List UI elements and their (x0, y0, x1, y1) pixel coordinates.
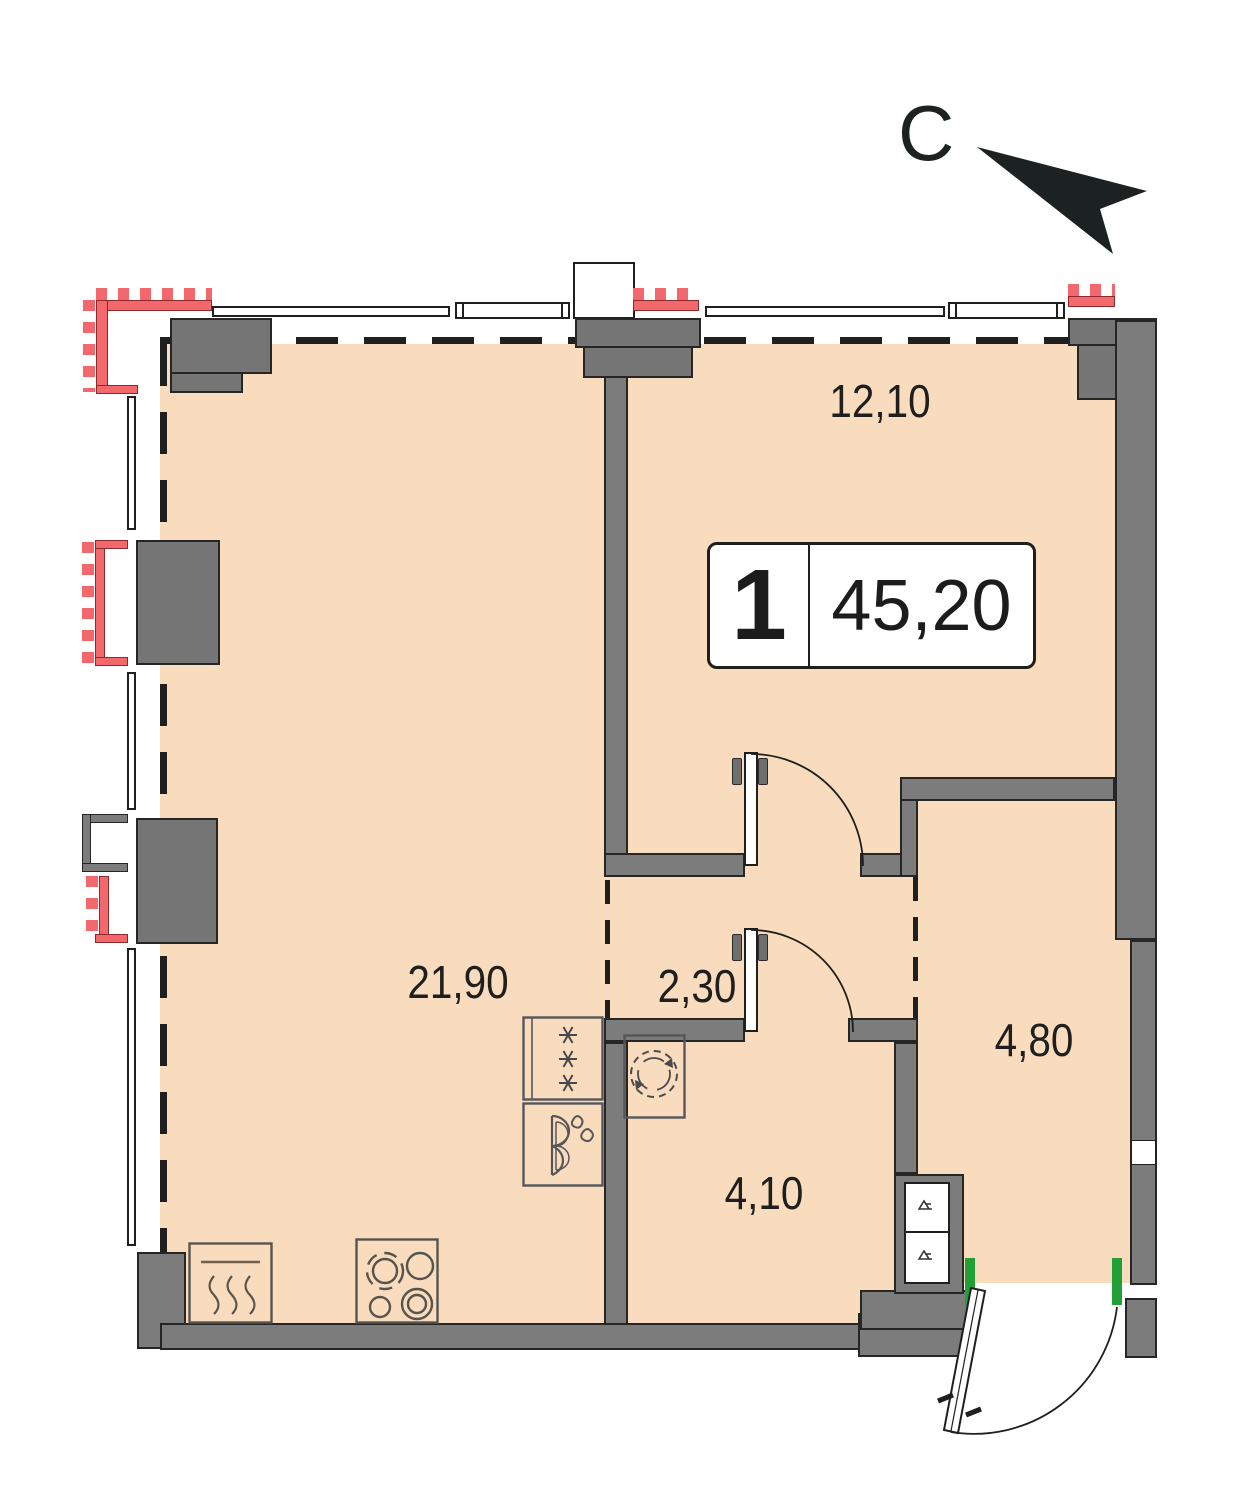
room-label-hallway: 2,30 (658, 959, 737, 1013)
room-label-bathroom: 4,10 (725, 1166, 804, 1220)
washing-machine-icon (623, 1034, 686, 1119)
north-label: С (898, 88, 954, 179)
north-arrow-icon (977, 147, 1147, 254)
total-area: 45,20 (810, 545, 1033, 666)
sink-icon (522, 1102, 604, 1187)
oven-icon (188, 1242, 273, 1324)
room-label-bedroom: 12,10 (829, 374, 930, 428)
room-count: 1 (710, 545, 810, 666)
apartment-info-badge: 1 45,20 (707, 542, 1036, 669)
room-label-sideroom: 4,80 (995, 1013, 1074, 1067)
stove-icon (355, 1238, 439, 1324)
fridge-icon (522, 1016, 604, 1101)
floor-plan: С 12,10 21,90 2,30 4,80 4,10 1 45,20 (0, 0, 1258, 1500)
room-label-living: 21,90 (407, 955, 508, 1009)
